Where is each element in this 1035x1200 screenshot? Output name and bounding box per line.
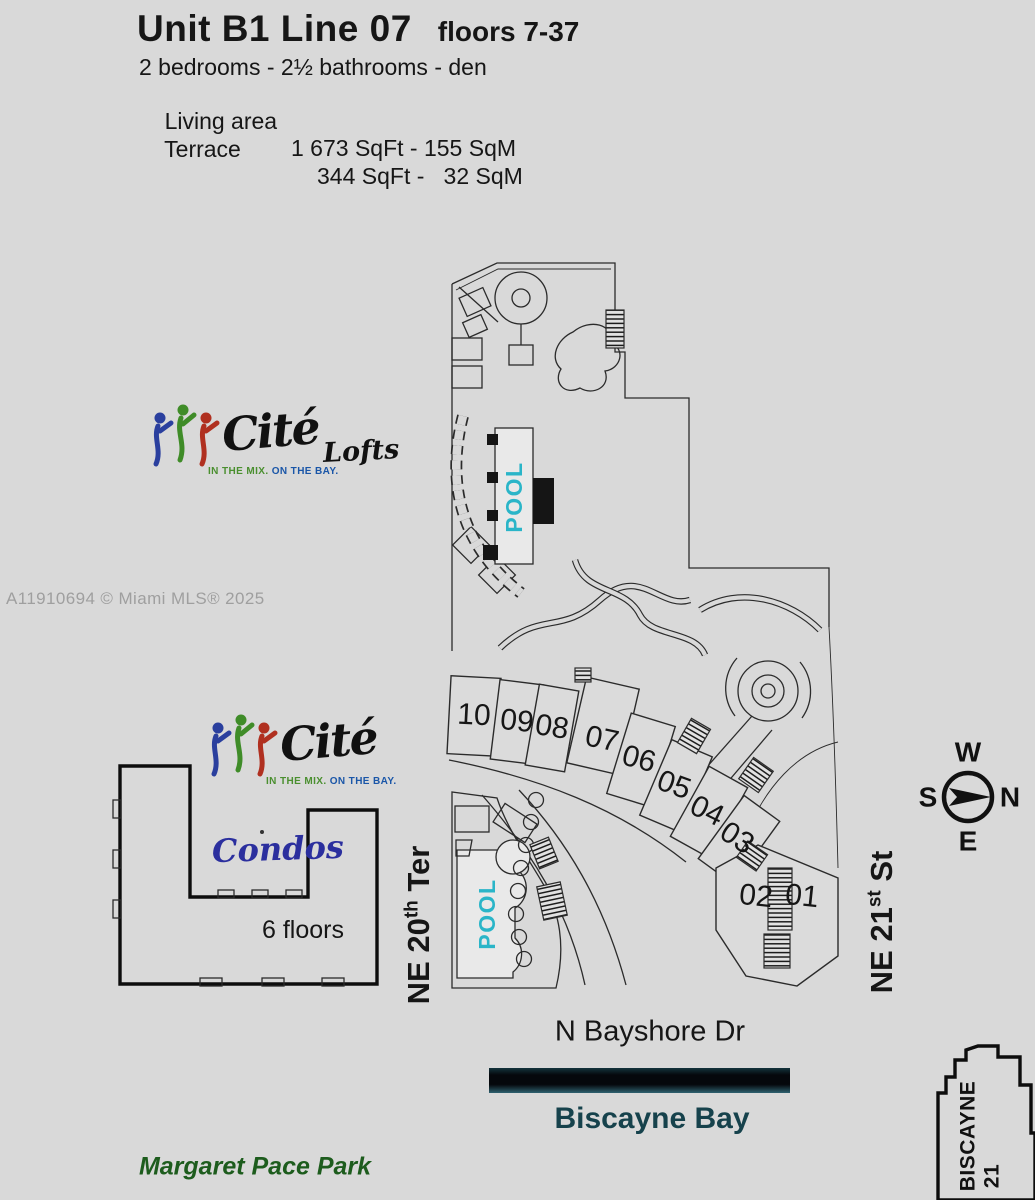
cite-brand-name: Cité — [278, 710, 379, 772]
cite-logo-figures-icon — [150, 402, 230, 474]
roof-circle-feature — [495, 272, 547, 324]
biscayne21-number: 21 — [981, 1164, 1004, 1188]
condos-floors-label: 6 floors — [262, 916, 344, 945]
unit-01-label: 01 — [784, 878, 821, 914]
tagline-mix: IN THE MIX. — [266, 776, 327, 787]
page-title: Unit B1 Line 07 — [137, 8, 412, 50]
street-type: St — [864, 851, 899, 891]
biscayne21-building: BISCAYNE 21 — [938, 1046, 1035, 1200]
floorplan-page: BISCAYNE 21 W S N E 10 09 08 07 06 05 04… — [0, 0, 1035, 1200]
floors-range: floors 7-37 — [438, 16, 580, 48]
unit-07-label: 07 — [582, 719, 622, 758]
street-name: NE 20 — [401, 918, 436, 1004]
living-area-value: 1 673 SqFt - 155 SqM — [291, 135, 516, 162]
unit-10-label: 10 — [456, 698, 491, 733]
terrace-row: Terrace 344 SqFt - 32 SqM — [139, 109, 241, 217]
compass-arrow-icon — [949, 788, 991, 806]
terrace-label: Terrace — [164, 136, 241, 162]
compass-e: E — [959, 826, 978, 857]
fountain — [726, 658, 811, 721]
compass-w: W — [955, 737, 982, 768]
mls-watermark: A11910694 © Miami MLS® 2025 — [6, 589, 265, 609]
tower-base-block — [716, 841, 838, 986]
lofts-label: Lofts — [322, 434, 400, 469]
cite-brand-name: Cité — [220, 400, 321, 462]
biscayne21-name: BISCAYNE — [957, 1081, 980, 1192]
cite-tagline: IN THE MIX. ON THE BAY. — [266, 776, 397, 787]
stairs-hatch — [537, 882, 568, 920]
upper-pool-label: POOL — [501, 461, 527, 532]
header: Unit B1 Line 07 floors 7-37 — [137, 8, 579, 50]
cite-condos-logo: Cité IN THE MIX. ON THE BAY. — [208, 712, 438, 812]
unit-08-label: 08 — [533, 708, 571, 746]
cite-tagline: IN THE MIX. ON THE BAY. — [208, 466, 339, 477]
street-name: NE 21 — [864, 907, 899, 993]
compass-s: S — [919, 782, 938, 813]
ordinal-suffix: th — [402, 900, 423, 918]
condos-label: Condos — [211, 828, 344, 871]
compass-n: N — [1000, 782, 1020, 813]
margaret-pace-park-label: Margaret Pace Park — [139, 1153, 371, 1182]
ordinal-suffix: st — [865, 890, 886, 907]
unit-09-label: 09 — [499, 703, 536, 739]
compass-rose: W S N E — [919, 737, 1020, 857]
biscayne-bay-label: Biscayne Bay — [554, 1102, 749, 1136]
tagline-mix: IN THE MIX. — [208, 466, 269, 477]
cite-logo-figures-icon — [208, 712, 288, 784]
bay-shoreline-bar — [489, 1068, 790, 1093]
lower-pool-label: POOL — [474, 878, 500, 949]
street-type: Ter — [401, 846, 436, 901]
garden-paths — [500, 560, 820, 655]
tagline-bay: ON THE BAY. — [330, 776, 397, 787]
unit-summary: 2 bedrooms - 2½ bathrooms - den — [139, 54, 487, 81]
street-n-bayshore-dr: N Bayshore Dr — [555, 1016, 745, 1049]
unit-02-label: 02 — [738, 878, 775, 914]
street-ne-20th-ter: NE 20th Ter — [401, 846, 437, 1005]
street-ne-21st-st: NE 21st St — [864, 851, 900, 994]
stairs-hatch — [764, 934, 790, 968]
terrace-value: 344 SqFt - 32 SqM — [317, 163, 523, 190]
lower-pool-area — [452, 792, 567, 988]
stairs-hatch — [606, 310, 624, 348]
